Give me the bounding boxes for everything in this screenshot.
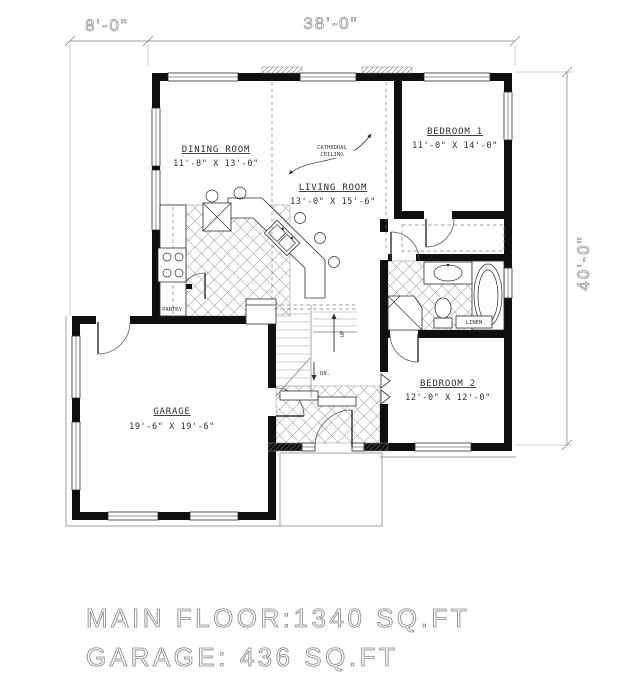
sill-hatch: [362, 67, 412, 73]
garage-name: GARAGE: [153, 407, 190, 417]
window: [108, 512, 158, 520]
window: [300, 73, 356, 81]
vanity-sink-icon: [424, 262, 472, 284]
bedroom1-closet-shelf: [402, 225, 504, 251]
wall-segment: [416, 254, 512, 261]
bedroom1-name: BEDROOM 1: [427, 127, 483, 137]
linen-closet: LINEN: [456, 316, 492, 328]
shower-icon: [388, 296, 422, 330]
window: [152, 170, 160, 230]
wall-segment: [452, 211, 512, 219]
linen-label: LINEN: [466, 320, 483, 326]
living-room-size: 13'-0" X 15'-6": [290, 197, 376, 207]
wall-segment: [380, 219, 388, 232]
bath-door: [391, 232, 419, 260]
window: [190, 512, 238, 520]
wall-segment: [418, 330, 512, 338]
garage-door: [98, 322, 130, 354]
garage-size: 19'-6" X 19'-6": [129, 422, 215, 432]
pantry-label: PANTRY: [162, 307, 183, 313]
stool: [295, 213, 306, 224]
toilet-icon: [434, 298, 452, 328]
window: [72, 336, 80, 398]
wall-segment: [394, 211, 424, 219]
window: [168, 73, 238, 81]
window: [415, 443, 471, 451]
window: [424, 73, 490, 81]
up-arrow-icon: UP: [334, 314, 346, 352]
window: [504, 92, 512, 140]
bedroom2-door: [390, 334, 418, 362]
cathedral-label-1: CATHEDRAL: [317, 145, 347, 151]
sill-hatch: [268, 443, 302, 451]
bedroom1-door: [426, 219, 454, 247]
bedroom2-name: BEDROOM 2: [420, 379, 476, 389]
up-label: UP: [340, 330, 346, 337]
living-room-name: LIVING ROOM: [299, 183, 367, 193]
footer-text: MAIN FLOOR:1340 SQ.FT GARAGE: 436 SQ.FT: [86, 603, 470, 672]
porch-outline: [280, 453, 382, 526]
down-arrow-icon: DN.: [314, 362, 330, 380]
dim-top-left: 8'-0": [85, 16, 129, 35]
garage-area-text: GARAGE: 436 SQ.FT: [86, 642, 398, 672]
bedroom2-closet-bifold: [381, 374, 390, 404]
wall-segment: [394, 81, 402, 219]
window: [72, 422, 80, 490]
window-sidelite: [302, 443, 315, 451]
cathedral-label-2: CEILING: [320, 152, 343, 158]
stairs: UP DN.: [274, 305, 358, 398]
wall-segment: [268, 316, 276, 388]
window: [504, 268, 512, 298]
cathedral-note: CATHEDRAL CEILING: [289, 134, 371, 174]
wall-segment: [380, 260, 388, 332]
down-label: DN.: [320, 371, 330, 377]
main-floor-area-text: MAIN FLOOR:1340 SQ.FT: [86, 603, 470, 633]
window-sidelite: [352, 443, 364, 451]
sill-hatch: [262, 67, 302, 73]
dimension-right: 40'-0": [516, 67, 593, 450]
sill-hatch: [364, 443, 388, 451]
dining-room-name: DINING ROOM: [182, 145, 250, 155]
wall-segment: [380, 404, 388, 443]
dim-top-main: 38'-0": [303, 14, 358, 33]
dim-right: 40'-0": [574, 235, 593, 290]
wall-segment: [72, 512, 276, 520]
floor-plan-canvas: 8'-0" 38'-0" 40'-0": [0, 0, 634, 685]
bedroom2-size: 12'-0" X 12'-0": [405, 393, 491, 403]
wall-segment: [268, 416, 276, 512]
window: [152, 108, 160, 166]
refrigerator-icon: [246, 299, 276, 324]
dining-room-size: 11'-8" X 13'-0": [173, 159, 259, 169]
stool: [329, 257, 340, 268]
stool: [315, 233, 326, 244]
bedroom1-size: 11'-0" X 14'-0": [412, 141, 498, 151]
stove-icon: [158, 248, 186, 282]
